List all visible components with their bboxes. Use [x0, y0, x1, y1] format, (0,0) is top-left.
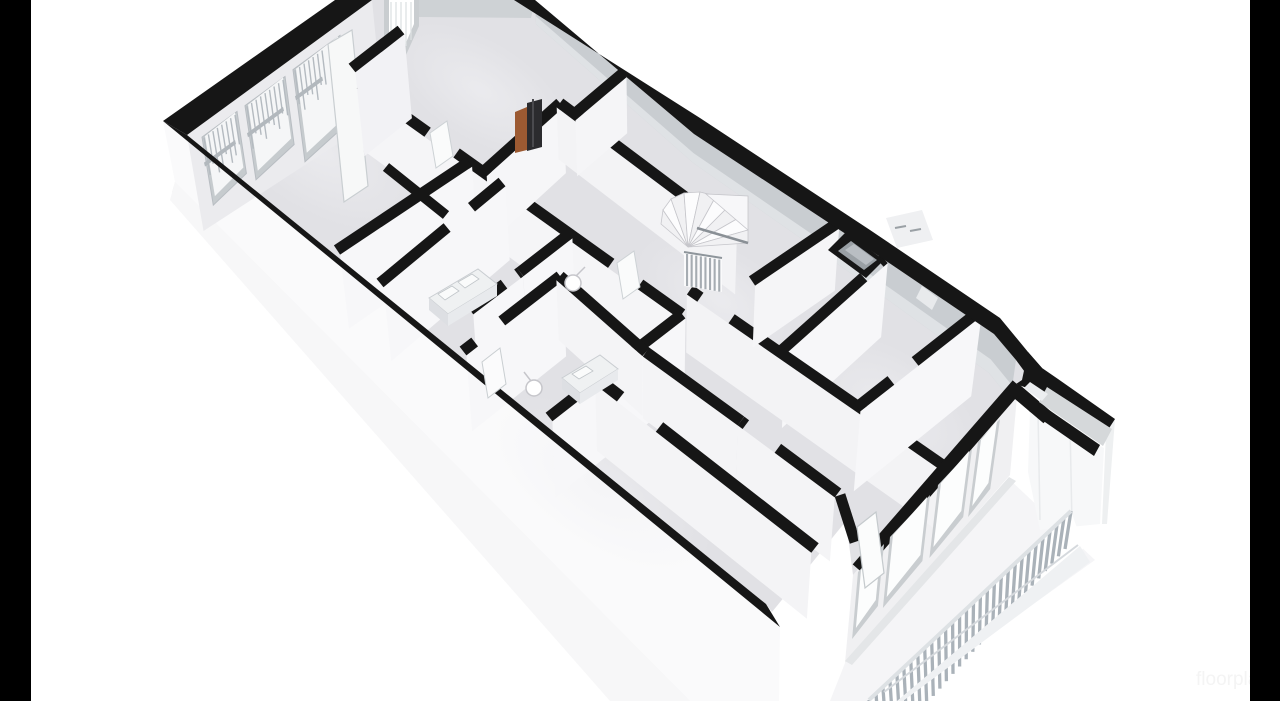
svg-text:floorpla: floorpla — [1196, 669, 1259, 690]
